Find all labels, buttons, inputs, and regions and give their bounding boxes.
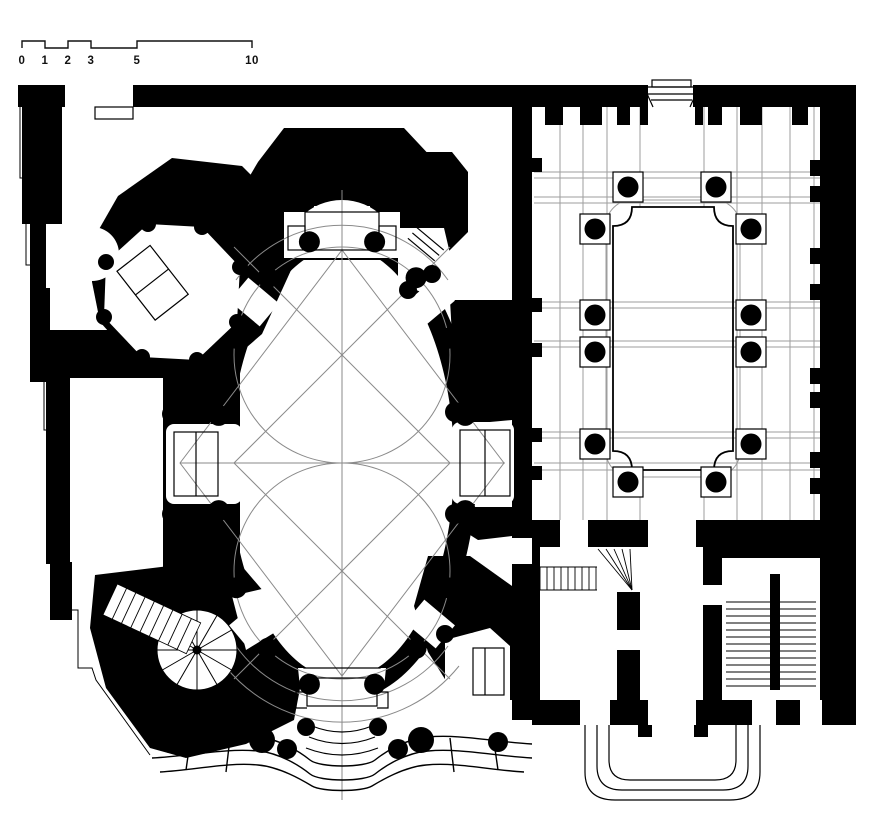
door-jamb	[638, 725, 652, 737]
column-shaft	[585, 434, 606, 455]
pilaster-tab	[810, 478, 820, 494]
column-shaft	[741, 219, 762, 240]
chapel-column	[423, 265, 441, 283]
floor-plan-drawing: 0 1 2 3 5 10	[0, 0, 875, 837]
pilaster-tab	[810, 248, 820, 264]
pilaster-tab	[532, 343, 542, 357]
nave-column	[299, 231, 320, 252]
chapel-column	[162, 504, 182, 524]
winder-tread	[614, 549, 632, 590]
south-steps	[609, 725, 736, 780]
pilaster-tab	[810, 284, 820, 300]
sacristy-column	[134, 349, 150, 365]
left-wall	[46, 378, 70, 564]
column-shaft	[706, 177, 727, 198]
lower-right-chapel	[445, 628, 510, 720]
chapel-column	[162, 404, 182, 424]
scale-bar-line	[22, 41, 252, 48]
top-wall	[133, 85, 648, 107]
nave-column	[257, 267, 278, 288]
nave-column	[257, 638, 278, 659]
door-gap	[512, 538, 532, 564]
scale-label: 1	[42, 55, 49, 67]
nave-column	[208, 500, 229, 521]
pilaster-tab	[810, 392, 820, 408]
pilaster-tab	[810, 160, 820, 176]
sacristy-column	[140, 216, 156, 232]
nave-column	[364, 231, 385, 252]
chapel-column	[399, 281, 417, 299]
facade-column	[277, 739, 297, 759]
column-shaft	[618, 177, 639, 198]
door-gap	[648, 700, 696, 725]
top-wall	[18, 85, 65, 107]
sacristy-column	[194, 219, 210, 235]
pilaster-tab	[532, 298, 542, 312]
sacristy-column	[98, 254, 114, 270]
left-wall	[50, 562, 72, 620]
nave-column	[437, 328, 458, 349]
service-wall	[722, 547, 820, 558]
dividing-wall	[512, 107, 532, 720]
winder-tread	[606, 549, 632, 590]
facade-column	[388, 739, 408, 759]
facade-column	[408, 727, 434, 753]
north-door-landing	[652, 80, 691, 87]
pilaster-tab	[810, 452, 820, 468]
nave-column	[437, 577, 458, 598]
nave-column	[406, 638, 427, 659]
sacristy-column	[189, 352, 205, 368]
service-stair-flight	[540, 549, 632, 590]
column-shaft	[741, 305, 762, 326]
sacristy-column	[96, 309, 112, 325]
column-shaft	[741, 342, 762, 363]
sacristy-column	[229, 314, 245, 330]
scale-label: 0	[19, 55, 26, 67]
column-shaft	[585, 219, 606, 240]
nave-column	[208, 405, 229, 426]
chapel-column	[445, 504, 465, 524]
long-room	[70, 378, 163, 562]
chapel-column	[436, 625, 454, 643]
chapel-column	[445, 402, 465, 422]
column-shaft	[741, 434, 762, 455]
nave-column	[364, 674, 385, 695]
door-gap	[752, 700, 776, 725]
arcade-pier	[545, 107, 563, 125]
nave-column	[226, 577, 247, 598]
door-gap	[617, 630, 640, 650]
door-gap	[648, 520, 696, 547]
door-jamb	[694, 725, 708, 737]
sacristy-column	[232, 259, 248, 275]
arcade-pier	[740, 107, 762, 125]
nave-column	[299, 674, 320, 695]
pilaster-tab	[532, 158, 542, 172]
arcade-piers	[545, 107, 808, 125]
facade-column	[488, 732, 508, 752]
window-step	[95, 107, 133, 119]
column-shaft	[585, 342, 606, 363]
facade-column	[297, 718, 315, 736]
arcade-pier	[617, 107, 630, 125]
pilaster-tab	[810, 186, 820, 202]
door-gap	[703, 585, 722, 605]
scale-label: 10	[245, 55, 259, 67]
service-wall	[532, 547, 540, 700]
left-wall	[22, 107, 62, 224]
pilaster-tab	[810, 368, 820, 384]
scale-label: 3	[88, 55, 95, 67]
scale-label: 2	[65, 55, 72, 67]
arcade-pier	[640, 107, 648, 125]
arcade-pier	[792, 107, 808, 125]
spiral-newel	[193, 646, 201, 654]
chapel-column	[461, 615, 479, 633]
left-altar-recess	[166, 424, 242, 504]
pilaster-tab	[532, 428, 542, 442]
north-door-gap	[648, 88, 693, 107]
arcade-pier	[708, 107, 722, 125]
right-wall	[820, 85, 856, 725]
door-gap	[560, 520, 588, 547]
scale-bar: 0 1 2 3 5 10	[19, 41, 259, 67]
service-wall	[703, 547, 722, 700]
pilaster-tab	[532, 466, 542, 480]
stair-spine-wall	[770, 574, 780, 690]
column-shaft	[585, 305, 606, 326]
left-wall	[30, 224, 46, 288]
arcade-pier	[695, 107, 703, 125]
arcade-pier	[580, 107, 602, 125]
garden	[613, 207, 733, 470]
column-shaft	[618, 472, 639, 493]
nave-column	[226, 328, 247, 349]
door-gap	[800, 700, 822, 725]
facade-column	[369, 718, 387, 736]
facade-column	[161, 735, 179, 753]
facade-column	[249, 727, 275, 753]
scale-label: 5	[134, 55, 141, 67]
column-shaft	[706, 472, 727, 493]
cloister	[532, 107, 820, 520]
door-gap	[580, 700, 610, 725]
